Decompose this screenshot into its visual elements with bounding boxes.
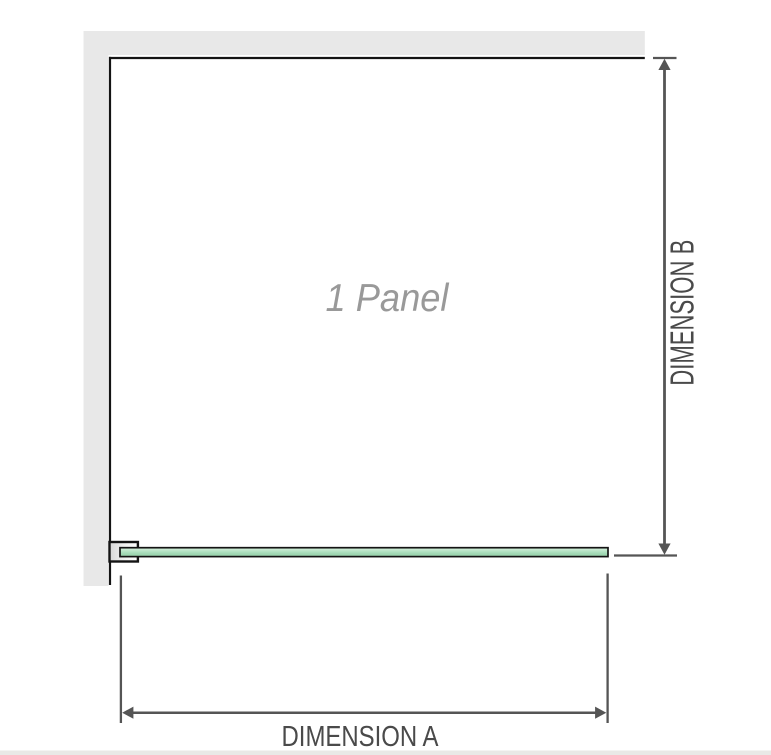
svg-text:DIMENSION B: DIMENSION B (663, 240, 700, 386)
svg-text:DIMENSION A: DIMENSION A (282, 721, 440, 753)
svg-text:1 Panel: 1 Panel (326, 277, 450, 320)
